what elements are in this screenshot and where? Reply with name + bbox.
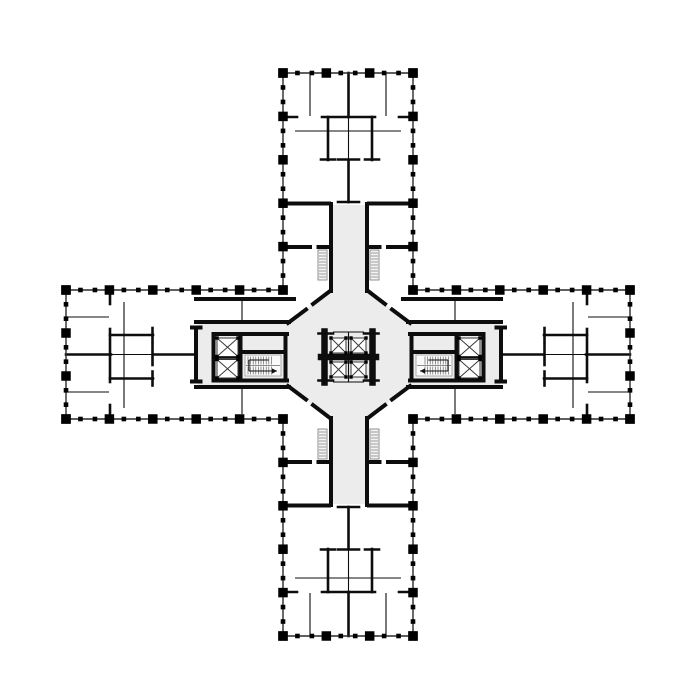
floor-plan [0, 0, 700, 700]
floor-plan-canvas [0, 0, 700, 700]
